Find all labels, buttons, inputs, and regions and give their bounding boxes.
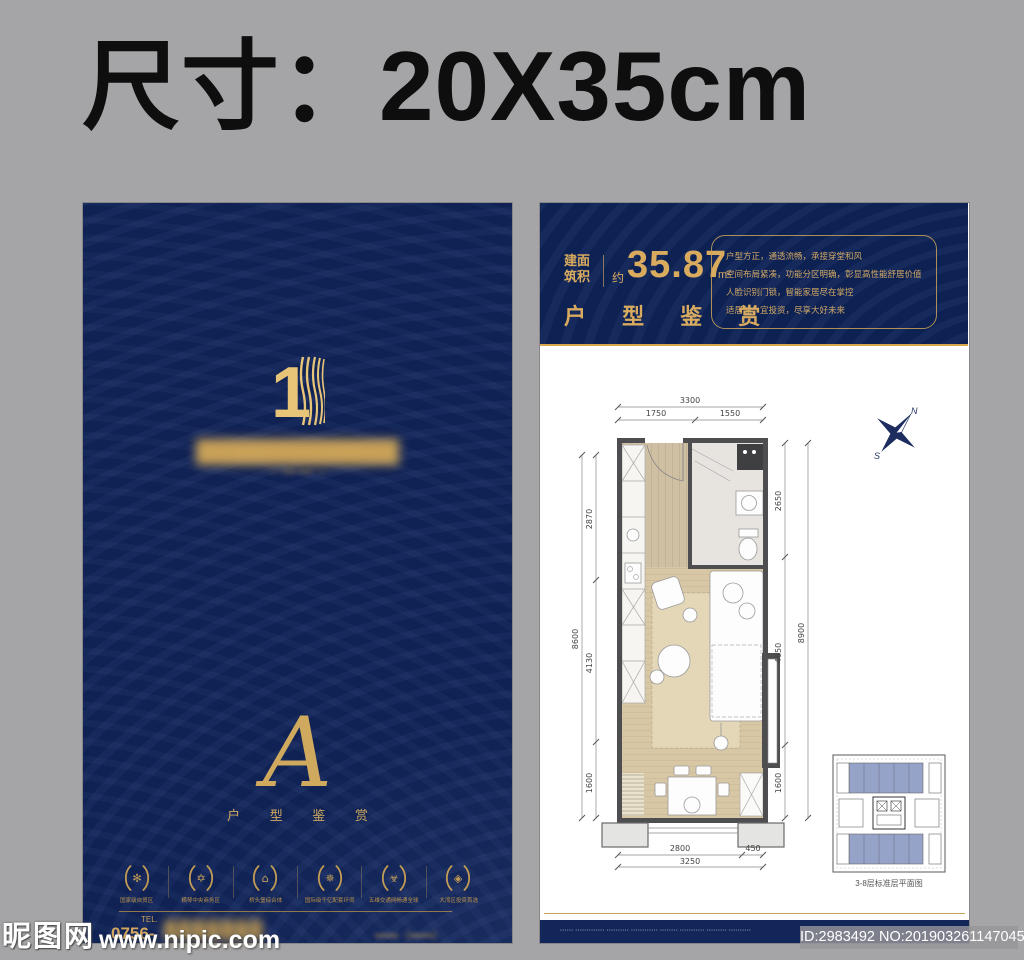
left-poster: 1 █████████████ — ▪▪▪▪ ▪▪▪▪ — A 户 型 鉴 赏 …: [83, 203, 512, 943]
badge-central-business-district: ✡ 横琴中央商务区: [169, 862, 232, 908]
kitchen-sink: [627, 529, 639, 541]
footer-gold-line: [544, 913, 965, 914]
medal-star-icon: ✡: [183, 862, 219, 894]
badge-investment-choice: ◈ 大湾区投资首选: [427, 862, 490, 908]
toilet-tank: [739, 529, 758, 537]
dim-top-seg2: 1550: [720, 409, 740, 418]
medal-diamond-icon: ◈: [440, 862, 476, 894]
chair: [650, 670, 664, 684]
badge-complex: ⌂ 桥头堡综合体: [234, 862, 297, 908]
selling-point: 空间布局紧凑，功能分区明确，彰显高性能舒居价值: [726, 265, 922, 283]
dim-top-seg1: 1750: [646, 409, 666, 418]
bay-window: [768, 659, 777, 763]
preview-canvas: 尺寸：20X35cm 1 █████████████ — ▪▪▪▪ ▪▪▪▪ —…: [0, 0, 1024, 960]
selling-point: 户型方正，通透流畅，承接穿堂和风: [726, 247, 922, 265]
dining-chair: [655, 783, 666, 796]
area-divider: [603, 255, 604, 287]
dim-right-seg2: 4650: [774, 643, 783, 663]
medal-snowflake-icon: ✻: [119, 862, 155, 894]
dim-left-seg1: 2870: [585, 509, 594, 529]
medal-stars-circle-icon: ✵: [312, 862, 348, 894]
dim-bottom-seg2: 450: [745, 844, 760, 853]
blurred-phone-suffix: ▪▪▪▪▪▪（▪▪▪▪▪▪）: [375, 927, 475, 943]
dim-left-total: 8600: [571, 629, 580, 649]
dimensions-top: 3300 1750 1550: [615, 396, 766, 423]
area-label: 建面 筑积: [564, 253, 590, 285]
dimensions-left: 8600 2870 4130 1600: [571, 452, 599, 821]
nipic-watermark: 昵图网 www.nipic.com: [2, 913, 280, 955]
script-letter-a: A: [263, 703, 332, 803]
badge-facilities: ✵ 国际级千亿配套环伺: [298, 862, 361, 908]
key-plan: [833, 755, 945, 872]
dining-chair: [696, 766, 711, 775]
badge-transport-network: ☣ 五维交通网畅通全球: [362, 862, 425, 908]
selling-point: 适居住、宜投资，尽享大好未来: [726, 301, 922, 319]
compass-icon: N S: [862, 399, 929, 466]
svg-text:◈: ◈: [454, 872, 463, 885]
compass-north-label: N: [911, 406, 918, 416]
bathroom-sink: [742, 496, 757, 511]
compass-south-label: S: [874, 451, 880, 461]
area-label-line1: 建面: [564, 253, 590, 269]
site-url: www.nipic.com: [99, 926, 280, 955]
washer: [737, 444, 763, 470]
dining-rug: [622, 773, 644, 816]
dining-person: [684, 797, 700, 813]
area-label-line2: 筑积: [564, 269, 590, 285]
svg-text:✻: ✻: [132, 872, 141, 885]
key-plan-caption: 3-8层标准层平面图: [855, 878, 923, 888]
dining-chair: [718, 783, 729, 796]
badge-free-trade-zone: ✻ 国家级自贸区: [105, 862, 168, 908]
blurred-project-name: █████████████: [163, 439, 433, 465]
dim-left-seg2: 4130: [585, 653, 594, 673]
dim-right-seg1: 2650: [774, 491, 783, 511]
huxing-jianshang-caption: 户 型 鉴 赏: [83, 805, 512, 824]
toilet: [739, 538, 757, 560]
floor-lamp: [714, 736, 728, 750]
selling-points-box: 户型方正，通透流畅，承接穿堂和风 空间布局紧凑，功能分区明确，彰显高性能舒居价值…: [711, 235, 937, 329]
dim-bottom-total: 3250: [680, 857, 700, 866]
right-poster: 建面 筑积 约 35.87 m² 户 型 鉴 赏 户型方正，通透流畅，承接穿堂和…: [540, 203, 969, 943]
medal-network-icon: ☣: [376, 862, 412, 894]
selling-point: 人脸识别门锁，智能家居尽在掌控: [726, 283, 922, 301]
dim-bottom-seg1: 2800: [670, 844, 690, 853]
dim-left-seg3: 1600: [585, 773, 594, 793]
round-table: [658, 645, 690, 677]
size-banner: 尺寸：20X35cm: [82, 30, 811, 142]
dim-top-total: 3300: [680, 396, 700, 405]
svg-text:✵: ✵: [325, 872, 334, 885]
cooktop: [625, 563, 641, 583]
gold-divider-rule: [119, 911, 452, 912]
dim-right-total: 8900: [797, 623, 806, 643]
blurred-project-subtitle: — ▪▪▪▪ ▪▪▪▪ —: [223, 467, 373, 478]
floor-plan-diagram: 3300 1750 1550 8600 2870 4130 1600: [540, 353, 968, 913]
site-name: 昵图网: [2, 913, 95, 955]
dining-chair: [674, 766, 689, 775]
svg-text:☣: ☣: [389, 872, 399, 885]
kitchen-cabinets: [622, 445, 645, 703]
award-badges-row: ✻ 国家级自贸区 ✡ 横琴中央商务区 ⌂ 桥头堡综合体: [105, 862, 490, 908]
number-one-building-logo-icon: 1: [271, 351, 325, 431]
medal-house-icon: ⌂: [247, 862, 283, 894]
illegible-disclaimer: ▪▪▪▪▪▪ ▪▪▪▪▪▪▪▪▪▪▪▪▪ ▪▪▪▪▪▪▪▪▪▪ ▪▪▪▪▪▪▪▪…: [560, 929, 751, 933]
dim-right-seg3: 1600: [774, 773, 783, 793]
side-table: [683, 608, 697, 622]
dimensions-bottom: 2800 450 3250: [615, 844, 766, 870]
svg-text:⌂: ⌂: [262, 872, 269, 885]
image-id-watermark: ID:2983492 NO:20190326114704575086: [800, 926, 1018, 949]
right-poster-header: 建面 筑积 约 35.87 m² 户 型 鉴 赏 户型方正，通透流畅，承接穿堂和…: [540, 203, 968, 346]
approx-label: 约: [612, 269, 624, 286]
svg-text:✡: ✡: [196, 872, 205, 885]
